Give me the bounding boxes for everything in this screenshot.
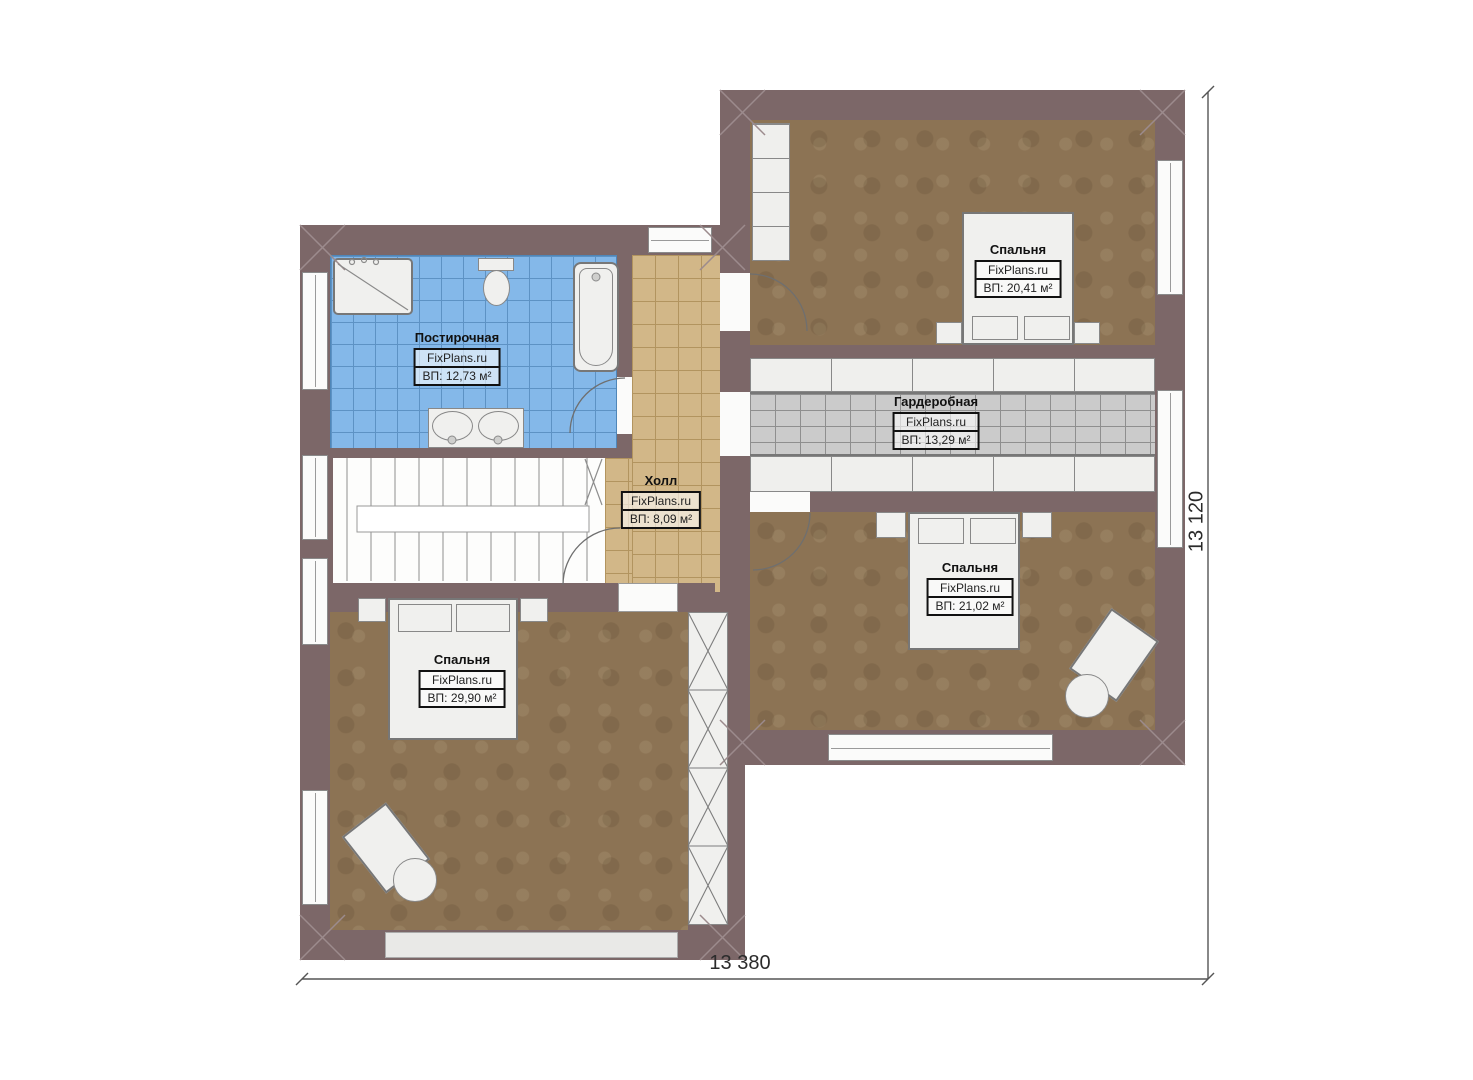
room-name: Гардеробная <box>893 394 980 409</box>
bathtub-basin <box>579 268 613 366</box>
stool <box>393 858 437 902</box>
room-name: Спальня <box>419 652 506 667</box>
bedroom-wardrobe-partition <box>750 345 1155 358</box>
room-area: ВП: 29,90 м² <box>421 688 504 706</box>
bath-stairs-partition <box>330 448 632 458</box>
room-label-bedroom-mid: Спальня FixPlans.ru ВП: 21,02 м² <box>927 560 1014 616</box>
bath-hall-partition-upper <box>617 255 632 377</box>
nightstand <box>1022 512 1052 538</box>
room-name: Холл <box>621 473 701 488</box>
bedroom-top-door-opening <box>720 273 750 331</box>
watermark-site: FixPlans.ru <box>929 580 1012 596</box>
nightstand <box>520 598 548 622</box>
staircase-area <box>333 458 605 583</box>
room-info-box: FixPlans.ru ВП: 8,09 м² <box>621 491 701 529</box>
room-info-box: FixPlans.ru ВП: 12,73 м² <box>414 348 501 386</box>
closet-strip <box>688 612 728 925</box>
room-area: ВП: 21,02 м² <box>929 596 1012 614</box>
pillow <box>456 604 510 632</box>
cabinet-column <box>752 123 790 261</box>
room-label-laundry: Постирочная FixPlans.ru ВП: 12,73 м² <box>414 330 501 386</box>
window-wide-bottom-left <box>385 932 678 958</box>
sink-basin <box>478 411 519 441</box>
room-area: ВП: 20,41 м² <box>977 278 1060 296</box>
watermark-site: FixPlans.ru <box>421 672 504 688</box>
room-area: ВП: 8,09 м² <box>623 509 699 527</box>
room-label-wardrobe: Гардеробная FixPlans.ru ВП: 13,29 м² <box>893 394 980 450</box>
nightstand <box>876 512 906 538</box>
room-info-box: FixPlans.ru ВП: 13,29 м² <box>893 412 980 450</box>
pillow <box>398 604 452 632</box>
window <box>302 558 328 645</box>
dimension-width-label: 13 380 <box>709 952 770 975</box>
dimension-height-label: 13 120 <box>1186 482 1209 562</box>
bathroom-door-opening <box>617 377 632 434</box>
room-name: Постирочная <box>414 330 501 345</box>
window <box>302 455 328 540</box>
watermark-site: FixPlans.ru <box>623 493 699 509</box>
room-info-box: FixPlans.ru ВП: 20,41 м² <box>975 260 1062 298</box>
window <box>648 227 712 253</box>
room-info-box: FixPlans.ru ВП: 29,90 м² <box>419 670 506 708</box>
window <box>302 790 328 905</box>
watermark-site: FixPlans.ru <box>416 350 499 366</box>
hall-floor <box>632 255 720 592</box>
nightstand <box>358 598 386 622</box>
nightstand <box>936 322 962 344</box>
window <box>1157 390 1183 548</box>
sink-basin <box>432 411 473 441</box>
wardrobe-cabinets-bottom <box>750 456 1155 492</box>
room-label-bedroom-top: Спальня FixPlans.ru ВП: 20,41 м² <box>975 242 1062 298</box>
pillow <box>972 316 1018 340</box>
window <box>1157 160 1183 295</box>
watermark-site: FixPlans.ru <box>977 262 1060 278</box>
window-wide-bottom-right <box>828 734 1053 761</box>
room-info-box: FixPlans.ru ВП: 21,02 м² <box>927 578 1014 616</box>
window <box>302 272 328 390</box>
wardrobe-bedroom-partition <box>750 492 1155 512</box>
hall-door-opening <box>618 583 678 612</box>
room-name: Спальня <box>975 242 1062 257</box>
room-label-hall: Холл FixPlans.ru ВП: 8,09 м² <box>621 473 701 529</box>
shower-tray <box>333 258 413 315</box>
nightstand <box>1074 322 1100 344</box>
pillow <box>1024 316 1070 340</box>
watermark-site: FixPlans.ru <box>895 414 978 430</box>
room-name: Спальня <box>927 560 1014 575</box>
bedroom-mid-door-opening <box>750 492 810 512</box>
pillow <box>970 518 1016 544</box>
room-area: ВП: 12,73 м² <box>416 366 499 384</box>
bedroom-top-right-floor <box>750 120 1155 345</box>
pillow <box>918 518 964 544</box>
floor-plan: Постирочная FixPlans.ru ВП: 12,73 м² Хол… <box>0 0 1473 1080</box>
stool <box>1065 674 1109 718</box>
room-area: ВП: 13,29 м² <box>895 430 978 448</box>
toilet-bowl <box>483 270 510 306</box>
wardrobe-cabinets-top <box>750 358 1155 392</box>
wardrobe-entry-opening <box>720 392 750 456</box>
room-label-bedroom-bottom: Спальня FixPlans.ru ВП: 29,90 м² <box>419 652 506 708</box>
